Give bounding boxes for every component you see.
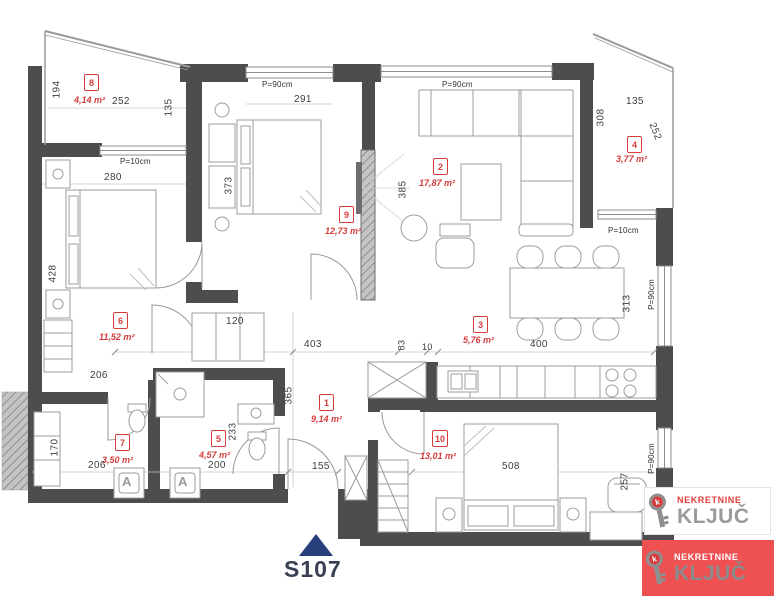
dim-233: 233: [227, 423, 238, 441]
wall: [180, 64, 248, 82]
room-badge-8: 8: [84, 74, 99, 91]
wall: [362, 82, 375, 152]
window-label-p90-room2: P=90cm: [442, 80, 473, 89]
dim-83: 83: [396, 340, 406, 351]
wall: [656, 208, 673, 266]
agency-brand: KLJUČ: [677, 506, 750, 527]
armchair-icon: [401, 215, 427, 241]
room-area-8: 4,14 m²: [74, 95, 105, 105]
dim-365: 365: [283, 387, 294, 405]
washer-label: A: [178, 474, 187, 489]
exterior-hatch: [2, 392, 28, 490]
room-area-6: 11,52 m²: [99, 332, 134, 342]
media-wall: [361, 150, 375, 300]
room-badge-10: 10: [432, 430, 448, 447]
agency-logo-light: k NEKRETNINE KLJUČ: [644, 487, 771, 535]
dining-table-icon: [510, 246, 624, 340]
window-label-p10-terrace4: P=10cm: [608, 226, 639, 235]
dim-206-room6: 206: [90, 370, 108, 381]
wall: [28, 489, 288, 503]
dim-170: 170: [49, 439, 60, 457]
wall: [28, 392, 108, 404]
room-area-3: 5,76 m²: [463, 335, 494, 345]
wall: [656, 346, 673, 430]
room-badge-6: 6: [113, 312, 128, 329]
dim-403: 403: [304, 339, 322, 350]
dim-428: 428: [47, 265, 58, 283]
dim-508: 508: [502, 461, 520, 472]
agency-logo-red: k NEKRETNINE KLJUČ: [642, 540, 774, 596]
room-badge-1: 1: [319, 394, 334, 411]
washer-label: A: [122, 474, 131, 489]
dim-257: 257: [619, 473, 630, 491]
room-area-1: 9,14 m²: [311, 414, 342, 424]
room-badge-4: 4: [627, 136, 642, 153]
agency-name: NEKRETNINE: [674, 553, 747, 562]
dim-206-room7: 206: [88, 460, 106, 471]
dim-252-terrace8: 252: [112, 96, 130, 107]
dim-373: 373: [223, 177, 234, 195]
agency-name: NEKRETNINE: [677, 496, 750, 505]
window-label-p90-room9: P=90cm: [262, 80, 293, 89]
dim-120: 120: [226, 316, 244, 327]
dim-385: 385: [397, 181, 408, 199]
bed-room9: [237, 120, 321, 214]
room-area-9: 12,73 m²: [325, 226, 361, 236]
floor-plan: 1 9,14 m² 2 17,87 m² 3 5,76 m² 4 3,77 m²…: [0, 0, 774, 600]
bed-room10: [464, 424, 558, 530]
wall: [420, 400, 656, 412]
agency-brand: KLJUČ: [674, 563, 747, 584]
window-label-p90-room10: P=90cm: [647, 443, 656, 474]
dim-155: 155: [312, 461, 330, 472]
dim-280: 280: [104, 172, 122, 183]
north-arrow-icon: [299, 534, 333, 556]
dim-313: 313: [621, 295, 632, 313]
lounge-chair-icon: [436, 224, 474, 268]
key-icon: k: [647, 491, 674, 531]
wall: [580, 70, 593, 228]
dim-135-terrace4: 135: [626, 96, 644, 107]
dim-400: 400: [530, 339, 548, 350]
door-room6: [156, 242, 202, 288]
room-badge-5: 5: [211, 430, 226, 447]
nightstands-room9: [209, 103, 235, 231]
wall: [368, 400, 380, 412]
dim-200: 200: [208, 460, 226, 471]
unit-code: S107: [284, 556, 342, 583]
wall: [368, 440, 378, 532]
dim-194: 194: [51, 81, 62, 99]
room-badge-7: 7: [115, 434, 130, 451]
dim-135-terrace8: 135: [163, 99, 174, 117]
desk-chair-icon: [590, 478, 646, 540]
wall: [333, 64, 381, 82]
door-room10: [382, 412, 424, 454]
room-area-4: 3,77 m²: [616, 154, 647, 164]
dim-308: 308: [595, 109, 606, 127]
room-badge-2: 2: [433, 158, 448, 175]
room-area-7: 3,50 m²: [102, 455, 133, 465]
kitchen-counter: [437, 366, 656, 398]
room-badge-3: 3: [473, 316, 488, 333]
window-label-p10-room6: P=10cm: [120, 157, 151, 166]
dim-291: 291: [294, 94, 312, 105]
room-area-10: 13,01 m²: [420, 451, 456, 461]
wall: [186, 290, 238, 303]
wall: [28, 143, 102, 157]
bed-room6: [66, 190, 156, 290]
key-icon: k: [644, 548, 671, 588]
window-label-p90-dining: P=90cm: [647, 279, 656, 310]
room-area-5: 4,57 m²: [199, 450, 230, 460]
wardrobe-icon: [378, 460, 408, 532]
wall: [186, 82, 202, 242]
door-room9: [311, 254, 357, 300]
room-area-2: 17,87 m²: [419, 178, 455, 188]
coffee-table-icon: [461, 164, 501, 220]
dim-10: 10: [422, 342, 433, 352]
room-badge-9: 9: [339, 206, 354, 223]
wall: [273, 474, 285, 489]
